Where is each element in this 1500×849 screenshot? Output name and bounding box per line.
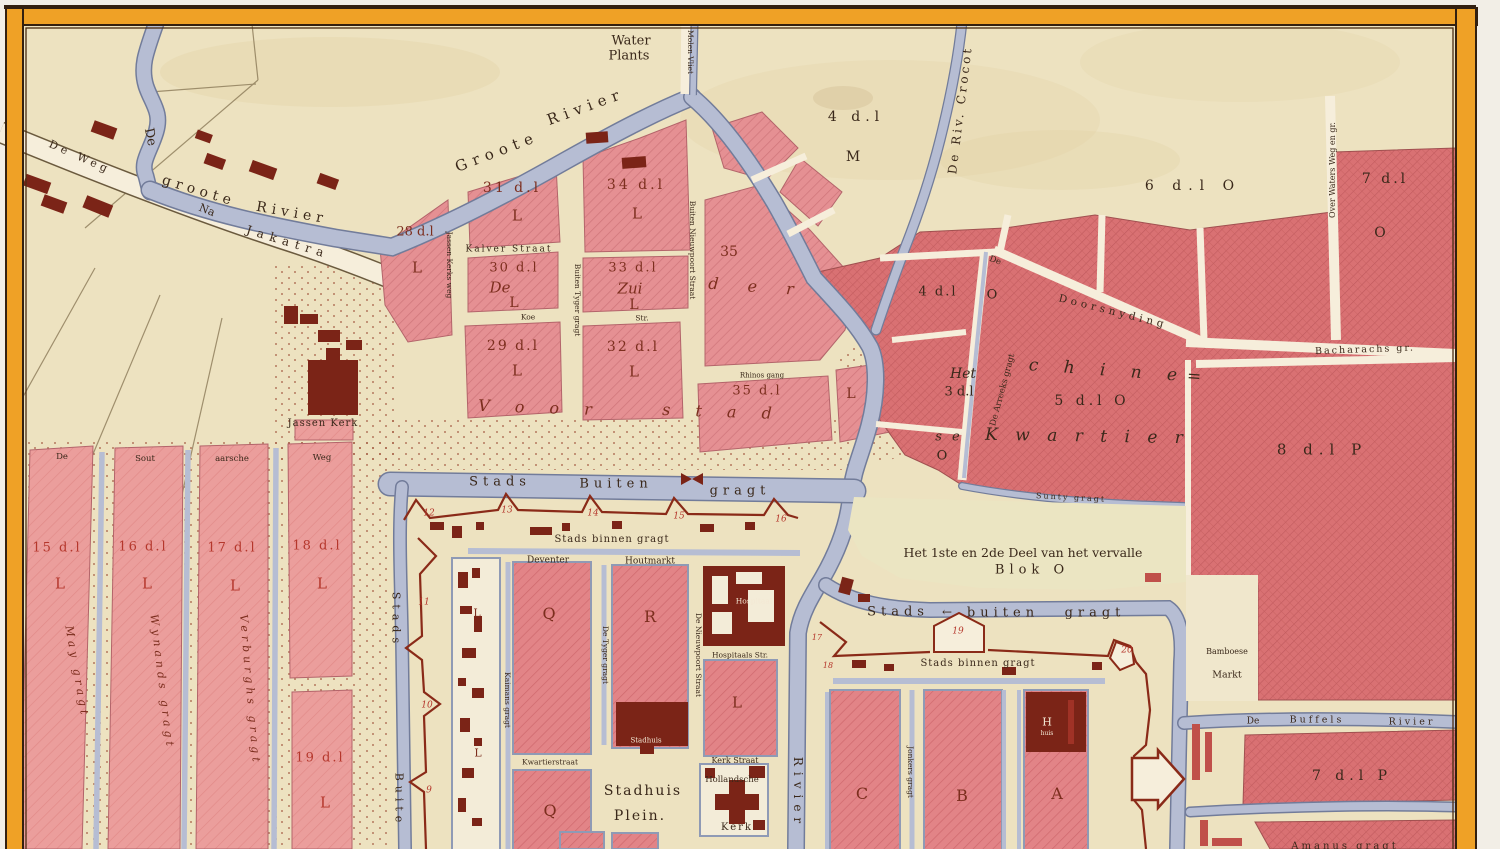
antique-city-map: WaterPlantsMolen VlietGrooteRivierDegroo…: [0, 0, 1500, 849]
map-artwork: [0, 0, 1500, 849]
